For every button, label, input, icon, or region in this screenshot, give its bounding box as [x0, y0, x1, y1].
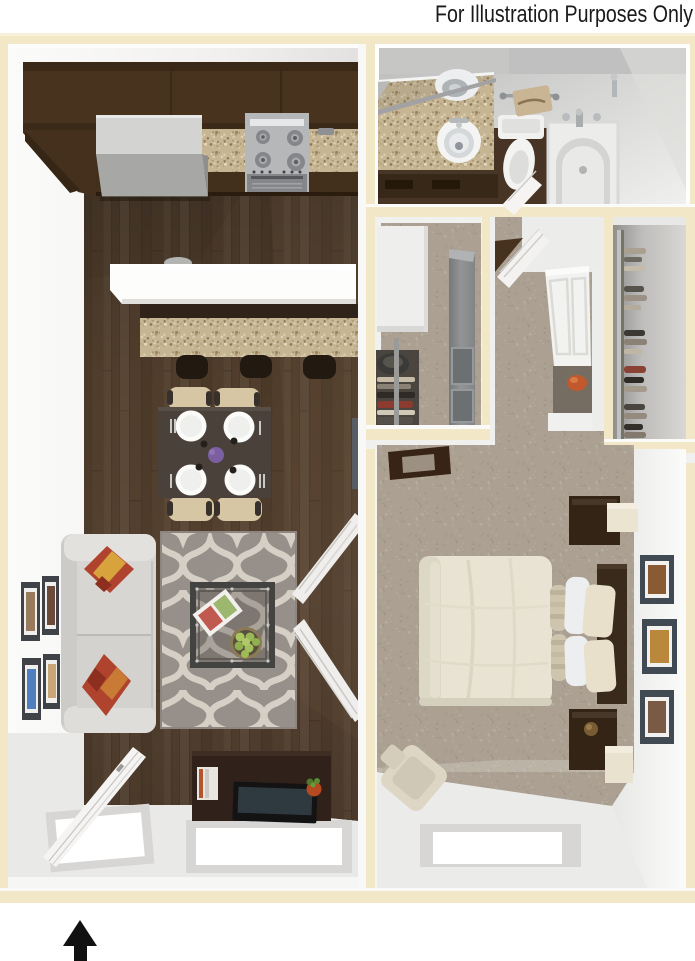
svg-text:For Illustration Purposes Only: For Illustration Purposes Only — [435, 1, 693, 28]
